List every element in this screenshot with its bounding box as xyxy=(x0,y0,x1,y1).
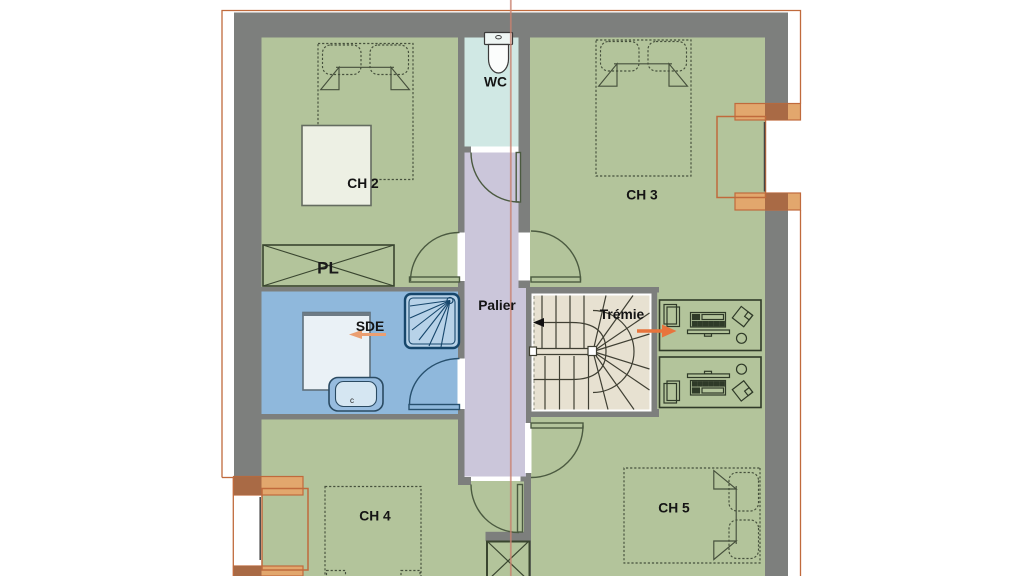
svg-text:PL: PL xyxy=(317,259,339,278)
svg-text:CH 5: CH 5 xyxy=(658,501,690,516)
svg-text:WC: WC xyxy=(484,75,507,90)
svg-text:CH 3: CH 3 xyxy=(626,188,658,203)
svg-text:SDE: SDE xyxy=(356,319,384,334)
svg-text:c: c xyxy=(350,396,354,405)
svg-text:Trémie: Trémie xyxy=(600,307,645,322)
svg-text:Palier: Palier xyxy=(478,298,516,313)
svg-text:CH 2: CH 2 xyxy=(347,176,379,191)
svg-text:CH 4: CH 4 xyxy=(359,509,391,524)
